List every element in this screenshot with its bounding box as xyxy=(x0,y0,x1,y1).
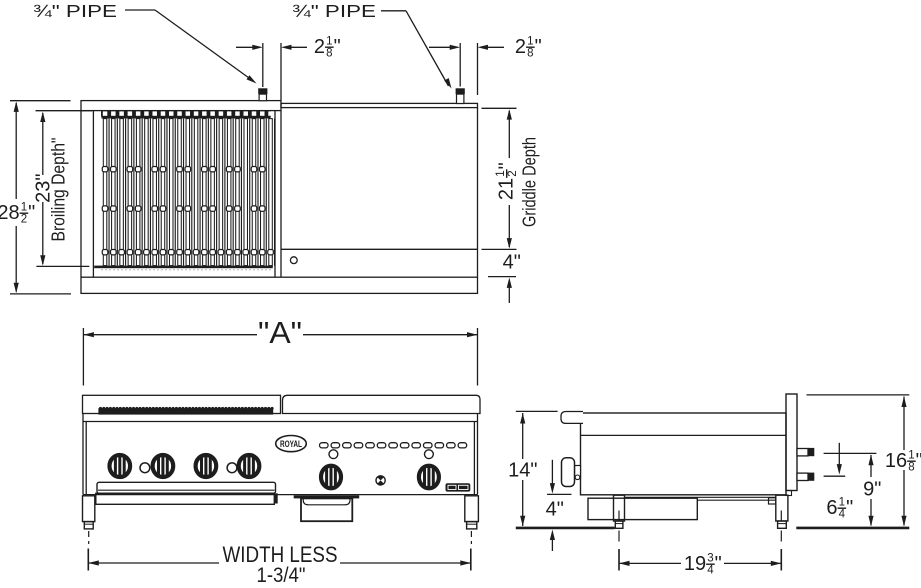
svg-text:8: 8 xyxy=(908,461,914,473)
svg-text:": " xyxy=(916,450,921,472)
svg-text:1: 1 xyxy=(527,35,533,47)
svg-text:1: 1 xyxy=(839,496,845,508)
svg-text:2: 2 xyxy=(314,36,325,58)
svg-text:3: 3 xyxy=(707,552,713,564)
svg-text:Griddle Depth: Griddle Depth xyxy=(519,137,540,227)
svg-text:2: 2 xyxy=(507,170,519,176)
svg-text:19: 19 xyxy=(684,553,706,575)
svg-text:1: 1 xyxy=(326,35,332,47)
svg-text:4: 4 xyxy=(839,508,846,520)
svg-text:4": 4" xyxy=(503,252,521,274)
svg-text:1: 1 xyxy=(908,449,914,461)
svg-text:4: 4 xyxy=(707,564,714,576)
svg-text:1-3/4": 1-3/4" xyxy=(257,564,306,583)
svg-text:16: 16 xyxy=(885,450,907,472)
svg-text:": " xyxy=(496,162,518,169)
svg-text:1: 1 xyxy=(495,170,507,176)
svg-text:8: 8 xyxy=(527,47,533,59)
svg-text:28: 28 xyxy=(0,202,20,224)
svg-text:": " xyxy=(334,36,341,58)
svg-text:4": 4" xyxy=(546,499,564,521)
svg-text:1: 1 xyxy=(21,201,27,213)
svg-text:": " xyxy=(535,36,542,58)
svg-text:¾" PIPE: ¾" PIPE xyxy=(33,1,117,21)
svg-text:21: 21 xyxy=(496,178,518,200)
svg-text:14": 14" xyxy=(508,460,537,482)
svg-text:Broiling Depth": Broiling Depth" xyxy=(48,138,69,242)
svg-text:ROYAL: ROYAL xyxy=(280,439,302,449)
svg-text:2: 2 xyxy=(21,213,27,225)
svg-text:": " xyxy=(715,553,722,575)
svg-text:": " xyxy=(846,497,853,519)
svg-text:8: 8 xyxy=(326,47,332,59)
svg-text:2: 2 xyxy=(515,36,526,58)
svg-text:6: 6 xyxy=(826,497,837,519)
svg-text:"A": "A" xyxy=(258,315,302,350)
svg-text:9": 9" xyxy=(863,479,881,501)
svg-text:¾" PIPE: ¾" PIPE xyxy=(292,1,376,21)
svg-text:": " xyxy=(28,202,35,224)
